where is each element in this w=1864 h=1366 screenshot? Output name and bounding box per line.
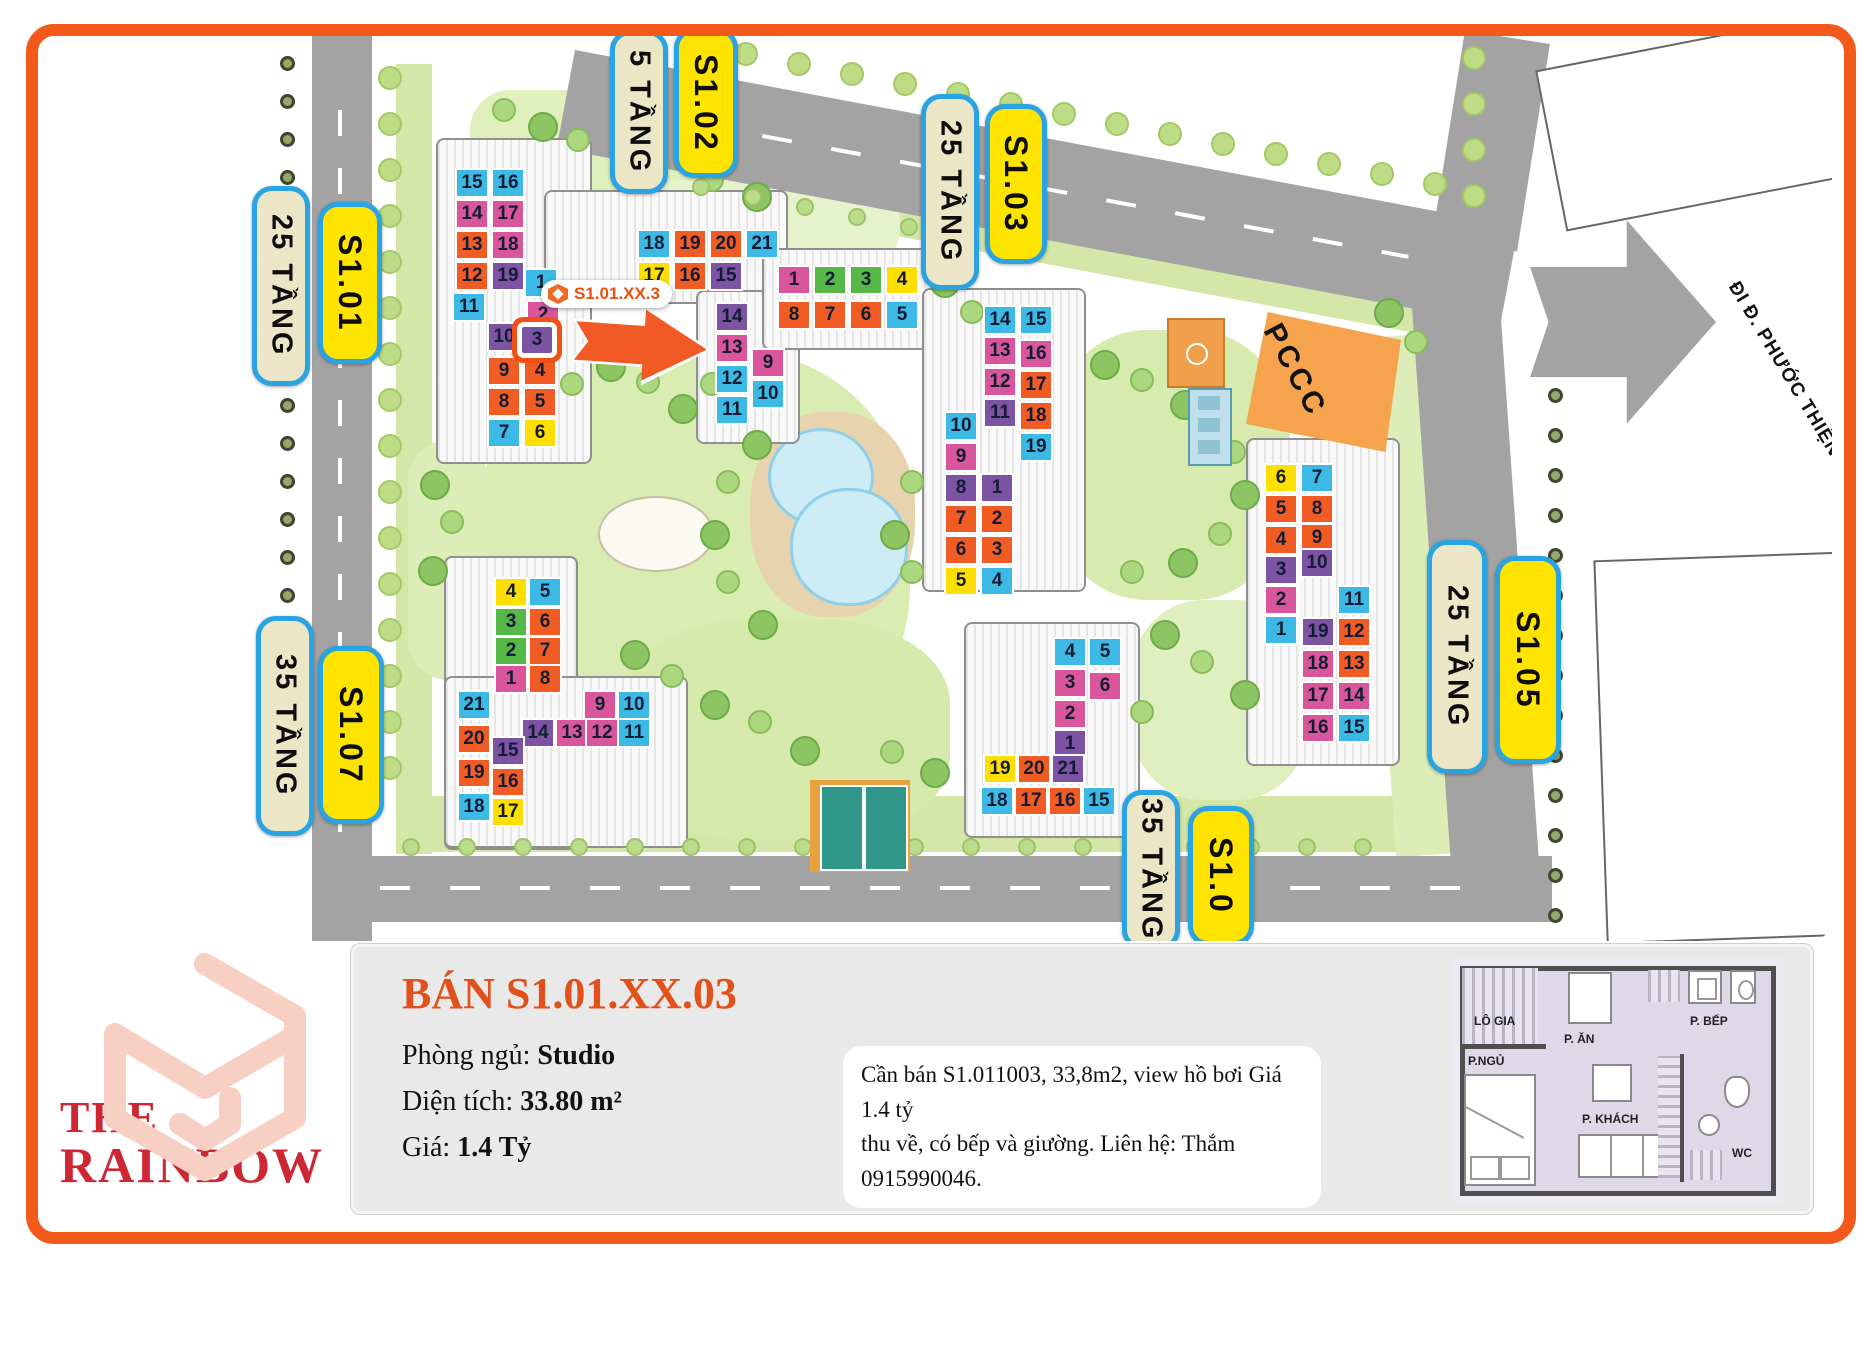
brand-watermark-icon [80,948,330,1210]
unit-cell-S1.03-19[interactable]: 19 [1019,432,1053,462]
tree-icon [1190,650,1214,674]
tree-icon [1548,788,1563,803]
area-row: Diện tích: 33.80 m² [402,1086,622,1118]
tree-icon [440,510,464,534]
tree-icon [1462,138,1486,162]
tree-icon [1264,142,1288,166]
kitchen-unit [1648,970,1680,1002]
tree-icon [458,838,476,856]
unit-cell-S1.03-9[interactable]: 9 [944,442,978,472]
shower [1690,1150,1722,1180]
tree-icon [748,710,772,734]
unit-cell-S1.02-16[interactable]: 16 [673,261,707,291]
tree-icon [1130,368,1154,392]
unit-cell-S1.03-18[interactable]: 18 [1019,401,1053,431]
unit-cell-S1.05-10[interactable]: 10 [1300,548,1334,578]
balcony-hatch [1462,968,1538,1046]
unit-cell-S1.03-10[interactable]: 10 [944,411,978,441]
coffee-table [1592,1064,1632,1102]
unit-cell-S1.02-21[interactable]: 21 [745,229,779,259]
unit-cell-S1.07-20[interactable]: 20 [457,724,491,754]
unit-cell-S1.03-11[interactable]: 11 [983,398,1017,428]
unit-cell-S1.07-3[interactable]: 3 [494,607,528,637]
listing-description: Cần bán S1.011003, 33,8m2, view hồ bơi G… [843,1046,1321,1208]
unit-cell-S1.01-17[interactable]: 17 [491,199,525,229]
tree-icon [420,470,450,500]
unit-cell-S1.02-18[interactable]: 18 [637,229,671,259]
unit-cell-S1.03-16[interactable]: 16 [1019,339,1053,369]
map-label-text: 25 TẦNG [1443,585,1472,728]
tree-icon [900,560,924,584]
unit-cell-S1.01-4[interactable]: 4 [523,356,557,386]
unit-cell-S1.01-15[interactable]: 15 [455,168,489,198]
unit-cell-S1.02-12[interactable]: 12 [715,364,749,394]
tree-icon [900,470,924,494]
unit-cell-S1.03-14[interactable]: 14 [983,305,1017,335]
tree-icon [1548,868,1563,883]
unit-cell-S1.05-17[interactable]: 17 [1301,681,1335,711]
map-label-text: S1.01 [334,234,366,333]
map-label-text: 35 TẦNG [1137,798,1166,941]
unit-cell-S1.02-10[interactable]: 10 [751,379,785,409]
tree-icon [1317,152,1341,176]
tree-icon [1548,908,1563,923]
unit-cell-S1.05-5[interactable]: 5 [1264,494,1298,524]
tree-icon [1548,828,1563,843]
tree-icon [280,398,295,413]
unit-cell-S1.07-2[interactable]: 2 [494,636,528,666]
unit-cell-S1.07-4[interactable]: 4 [494,577,528,607]
pccc-label: PCCC [1256,318,1333,423]
unit-cell-S1.01-12[interactable]: 12 [455,261,489,291]
tree-icon [880,740,904,764]
tree-icon [900,218,918,236]
unit-cell-S1.07-15[interactable]: 15 [491,736,525,766]
tree-icon [700,520,730,550]
tree-icon [1090,350,1120,380]
unit-cell-S1.02-9[interactable]: 9 [751,348,785,378]
map-label-text: S1.02 [690,54,722,153]
tree-icon [280,56,295,71]
listing-title: BÁN S1.01.XX.03 [402,968,737,1019]
toilet [1724,1076,1750,1108]
unit-cell-S1.06-6[interactable]: 6 [1088,671,1122,701]
tree-icon [570,838,588,856]
amenity-building [1188,388,1232,466]
tree-icon [514,838,532,856]
area-label: Diện tích: [402,1086,513,1117]
tree-icon [848,208,866,226]
unit-cell-S1.02-20[interactable]: 20 [709,229,743,259]
unit-cell-S1.07-11[interactable]: 11 [617,718,651,748]
unit-cell-S1.07-13[interactable]: 13 [555,718,589,748]
unit-cell-S1.01-18[interactable]: 18 [491,230,525,260]
price-value: 1.4 Tỷ [457,1132,531,1163]
unit-cell-S1.06-15[interactable]: 15 [1082,786,1116,816]
unit-cell-S1.03-7[interactable]: 7 [944,504,978,534]
unit-cell-S1.05-6[interactable]: 6 [1264,463,1298,493]
room-label-kitchen: P. BẾP [1690,1014,1728,1028]
room-label-living: P. KHÁCH [1582,1112,1638,1126]
basketball-court [1167,318,1225,388]
unit-cell-S1.07-6[interactable]: 6 [528,607,562,637]
tree-icon [716,470,740,494]
building-label-S1.05: S1.05 [1495,556,1561,764]
building-label-S1.07: S1.07 [318,646,384,824]
tree-icon [378,66,402,90]
unit-cell-S1.07-14[interactable]: 14 [521,718,555,748]
unit-cell-S1.01-16[interactable]: 16 [491,168,525,198]
bedroom-label: Phòng ngủ: [402,1040,530,1071]
area-unit: m² [590,1086,622,1117]
map-label-text: S1.07 [335,686,367,785]
tree-icon [560,372,584,396]
tree-icon [893,72,917,96]
tree-icon [1374,298,1404,328]
floors-label-35 TẦNG: 35 TẦNG [256,616,314,836]
unit-cell-S1.05-7[interactable]: 7 [1300,463,1334,493]
tree-icon [1298,838,1316,856]
map-label-text: S1.0 [1205,837,1237,915]
tree-icon [1548,388,1563,403]
floors-label-25 TẦNG: 25 TẦNG [921,94,979,290]
tree-icon [1548,508,1563,523]
unit-cell-S1.06-17[interactable]: 17 [1014,786,1048,816]
building-label-S1.03: S1.03 [985,104,1047,264]
tree-icon [1548,428,1563,443]
tree-icon [418,556,448,586]
unit-cell-S1.06-19[interactable]: 19 [983,754,1017,784]
room-label-wc: WC [1732,1146,1752,1160]
price-label: Giá: [402,1132,450,1163]
unit-cell-S1.06-20[interactable]: 20 [1017,754,1051,784]
dining-table [1568,972,1612,1024]
tree-icon [1208,522,1232,546]
unit-cell-S1.05-1[interactable]: 1 [1264,615,1298,645]
unit-cell-S1.03-wing-1[interactable]: 1 [777,265,811,295]
unit-cell-S1.03-15[interactable]: 15 [1019,305,1053,335]
unit-cell-S1.06-18[interactable]: 18 [980,786,1014,816]
listing-poster: ĐI Đ. PHƯỚC THIỆN PCCC [0,0,1864,1366]
tree-icon [1548,468,1563,483]
road-right-upper [1432,31,1550,252]
tree-icon [378,618,402,642]
wardrobe [1658,1056,1680,1178]
bedroom-value: Studio [537,1040,615,1071]
room-label-balcony: LÔ GIA [1474,1014,1515,1028]
tree-icon [280,436,295,451]
lot-outline [1535,13,1864,232]
tree-icon [280,132,295,147]
unit-cell-S1.07-12[interactable]: 12 [585,718,619,748]
tree-icon [742,430,772,460]
map-label-text: 35 TẦNG [271,654,300,797]
unit-cell-S1.05-11[interactable]: 11 [1337,585,1371,615]
sink [1730,970,1756,1004]
unit-cell-S1.07-21[interactable]: 21 [457,690,491,720]
floors-label-5 TẦNG: 5 TẦNG [610,30,668,194]
stove [1688,970,1722,1004]
unit-cell-S1.01-5[interactable]: 5 [523,387,557,417]
unit-cell-S1.07-18[interactable]: 18 [457,792,491,822]
street-label: ĐI Đ. PHƯỚC THIỆN [1723,278,1845,461]
tree-icon [1404,330,1428,354]
tree-icon [920,758,950,788]
tree-icon [1168,548,1198,578]
unit-cell-S1.01-13[interactable]: 13 [455,230,489,260]
unit-cell-S1.02-14[interactable]: 14 [715,302,749,332]
room-label-bedroom: P.NGỦ [1468,1054,1504,1068]
map-label-text: 25 TẦNG [267,214,296,357]
unit-cell-S1.07-8[interactable]: 8 [528,664,562,694]
road-centerline [380,886,1480,890]
building-label-S1.02: S1.02 [674,28,738,178]
map-label-text: S1.03 [1000,135,1032,234]
unit-cell-S1.07-7[interactable]: 7 [528,636,562,666]
unit-cell-S1.06-3[interactable]: 3 [1053,668,1087,698]
tree-icon [378,158,402,182]
building-footprint-s1-03-wing [762,248,946,350]
unit-cell-S1.03-4[interactable]: 4 [980,566,1014,596]
unit-cell-S1.05-12[interactable]: 12 [1337,617,1371,647]
unit-cell-S1.03-wing-5[interactable]: 5 [885,300,919,330]
unit-cell-S1.03-wing-6[interactable]: 6 [849,300,883,330]
unit-cell-S1.06-21[interactable]: 21 [1051,754,1085,784]
bedroom-row: Phòng ngủ: Studio [402,1040,615,1072]
unit-cell-S1.05-3[interactable]: 3 [1264,555,1298,585]
tree-icon [700,690,730,720]
tree-icon [962,838,980,856]
bed [1464,1074,1536,1186]
wall [1462,1044,1546,1049]
unit-cell-S1.01-10[interactable]: 10 [487,322,521,352]
unit-cell-S1.01-6[interactable]: 6 [523,418,557,448]
tree-icon [378,388,402,412]
tree-icon [1230,480,1260,510]
tree-icon [738,838,756,856]
floorplan-thumbnail: LÔ GIA P.NGỦ P. ĂN P. BẾP P. KHÁCH WC [1452,958,1784,1204]
unit-cell-S1.07-16[interactable]: 16 [491,767,525,797]
unit-cell-S1.05-19[interactable]: 19 [1301,617,1335,647]
tree-icon [378,526,402,550]
lot-outline [1593,552,1850,944]
tree-icon [280,474,295,489]
tree-icon [1462,46,1486,70]
tree-icon [692,178,710,196]
tree-icon [716,570,740,594]
unit-cell-S1.03-2[interactable]: 2 [980,504,1014,534]
unit-cell-S1.03-wing-7[interactable]: 7 [813,300,847,330]
unit-cell-S1.05-16[interactable]: 16 [1301,713,1335,743]
unit-cell-S1.01-19[interactable]: 19 [491,261,525,291]
map-label-text: S1.05 [1512,611,1544,710]
tree-icon [492,98,516,122]
tree-icon [1120,560,1144,584]
area-value: 33.80 [520,1086,583,1117]
unit-cell-S1.01-3[interactable]: 3 [520,325,554,355]
floors-label-25 TẦNG: 25 TẦNG [1427,540,1487,774]
unit-cell-S1.07-10[interactable]: 10 [617,690,651,720]
unit-cell-S1.05-15[interactable]: 15 [1337,713,1371,743]
unit-cell-S1.03-6[interactable]: 6 [944,535,978,565]
unit-cell-S1.03-13[interactable]: 13 [983,336,1017,366]
map-label-text: 25 TẦNG [936,120,965,263]
unit-cell-S1.05-4[interactable]: 4 [1264,525,1298,555]
tree-icon [1150,620,1180,650]
tree-icon [682,838,700,856]
tree-icon [796,198,814,216]
unit-cell-S1.03-wing-8[interactable]: 8 [777,300,811,330]
tree-icon [1462,92,1486,116]
unit-cell-S1.06-2[interactable]: 2 [1053,699,1087,729]
tree-icon [402,838,420,856]
room-label-dining: P. ĂN [1564,1032,1594,1046]
tree-icon [668,394,698,424]
description-line-2: thu về, có bếp và giường. Liên hệ: Thắm … [861,1127,1303,1196]
unit-cell-S1.05-14[interactable]: 14 [1337,681,1371,711]
unit-cell-S1.02-13[interactable]: 13 [715,333,749,363]
tree-icon [280,170,295,185]
tree-icon [787,52,811,76]
unit-cell-S1.01-9[interactable]: 9 [487,356,521,386]
unit-cell-S1.03-1[interactable]: 1 [980,473,1014,503]
tree-icon [880,520,910,550]
unit-cell-S1.01-11[interactable]: 11 [452,292,486,322]
unit-cell-S1.01-8[interactable]: 8 [487,387,521,417]
selected-unit-marker: S1.01.XX.3 [541,280,672,308]
washbasin [1698,1114,1720,1136]
tree-icon [1074,838,1092,856]
tree-icon [378,112,402,136]
tree-icon [1370,162,1394,186]
unit-cell-S1.05-8[interactable]: 8 [1300,494,1334,524]
unit-cell-S1.07-1[interactable]: 1 [494,664,528,694]
tree-icon [378,480,402,504]
unit-cell-S1.03-wing-3[interactable]: 3 [849,265,883,295]
tree-icon [1105,112,1129,136]
tree-icon [1211,132,1235,156]
tree-icon [744,188,762,206]
unit-cell-S1.03-17[interactable]: 17 [1019,370,1053,400]
tree-icon [280,512,295,527]
tree-icon [790,736,820,766]
tree-icon [378,434,402,458]
tree-icon [280,550,295,565]
tree-icon [960,300,984,324]
unit-cell-S1.01-7[interactable]: 7 [487,418,521,448]
tree-icon [280,588,295,603]
unit-cell-S1.03-wing-2[interactable]: 2 [813,265,847,295]
tree-icon [1462,184,1486,208]
tree-icon [280,94,295,109]
unit-cell-S1.05-2[interactable]: 2 [1264,585,1298,615]
tree-icon [1130,700,1154,724]
tree-icon [748,610,778,640]
tennis-court [810,780,910,872]
tree-icon [1018,838,1036,856]
tree-icon [378,572,402,596]
unit-cell-S1.06-4[interactable]: 4 [1053,637,1087,667]
tree-icon [620,640,650,670]
tree-icon [1230,680,1260,710]
brand-hexagon-icon [548,284,568,304]
unit-cell-S1.06-16[interactable]: 16 [1048,786,1082,816]
unit-cell-S1.05-18[interactable]: 18 [1301,649,1335,679]
brand-logo: THE RAINBOW [50,948,350,1210]
unit-cell-S1.02-19[interactable]: 19 [673,229,707,259]
tree-icon [566,128,590,152]
unit-cell-S1.07-17[interactable]: 17 [491,797,525,827]
tree-icon [1423,172,1447,196]
tree-icon [626,838,644,856]
unit-cell-S1.02-11[interactable]: 11 [715,395,749,425]
tree-icon [528,112,558,142]
floors-label-35 TẦNG: 35 TẦNG [1122,790,1180,950]
tree-icon [840,62,864,86]
price-row: Giá: 1.4 Tỷ [402,1132,531,1164]
tree-icon [1354,838,1372,856]
unit-cell-S1.05-13[interactable]: 13 [1337,649,1371,679]
unit-cell-S1.07-19[interactable]: 19 [457,758,491,788]
unit-cell-S1.07-5[interactable]: 5 [528,577,562,607]
tree-icon [1158,122,1182,146]
unit-cell-S1.01-14[interactable]: 14 [455,199,489,229]
unit-cell-S1.06-5[interactable]: 5 [1088,637,1122,667]
unit-cell-S1.07-9[interactable]: 9 [583,690,617,720]
unit-cell-S1.03-8[interactable]: 8 [944,473,978,503]
wall [1680,1054,1684,1182]
pond [598,496,714,572]
unit-cell-S1.02-15[interactable]: 15 [709,261,743,291]
unit-cell-S1.03-5[interactable]: 5 [944,566,978,596]
map-label-text: 5 TẦNG [625,50,654,174]
description-line-1: Cần bán S1.011003, 33,8m2, view hồ bơi G… [861,1058,1303,1127]
floors-label-25 TẦNG: 25 TẦNG [252,186,310,386]
unit-cell-S1.03-12[interactable]: 12 [983,367,1017,397]
building-label-S1.01: S1.01 [318,202,382,364]
unit-cell-S1.03-3[interactable]: 3 [980,535,1014,565]
unit-cell-S1.03-wing-4[interactable]: 4 [885,265,919,295]
building-label-S1.0: S1.0 [1188,806,1254,946]
tree-icon [660,664,684,688]
tree-icon [1052,102,1076,126]
selected-unit-label: S1.01.XX.3 [574,284,660,304]
